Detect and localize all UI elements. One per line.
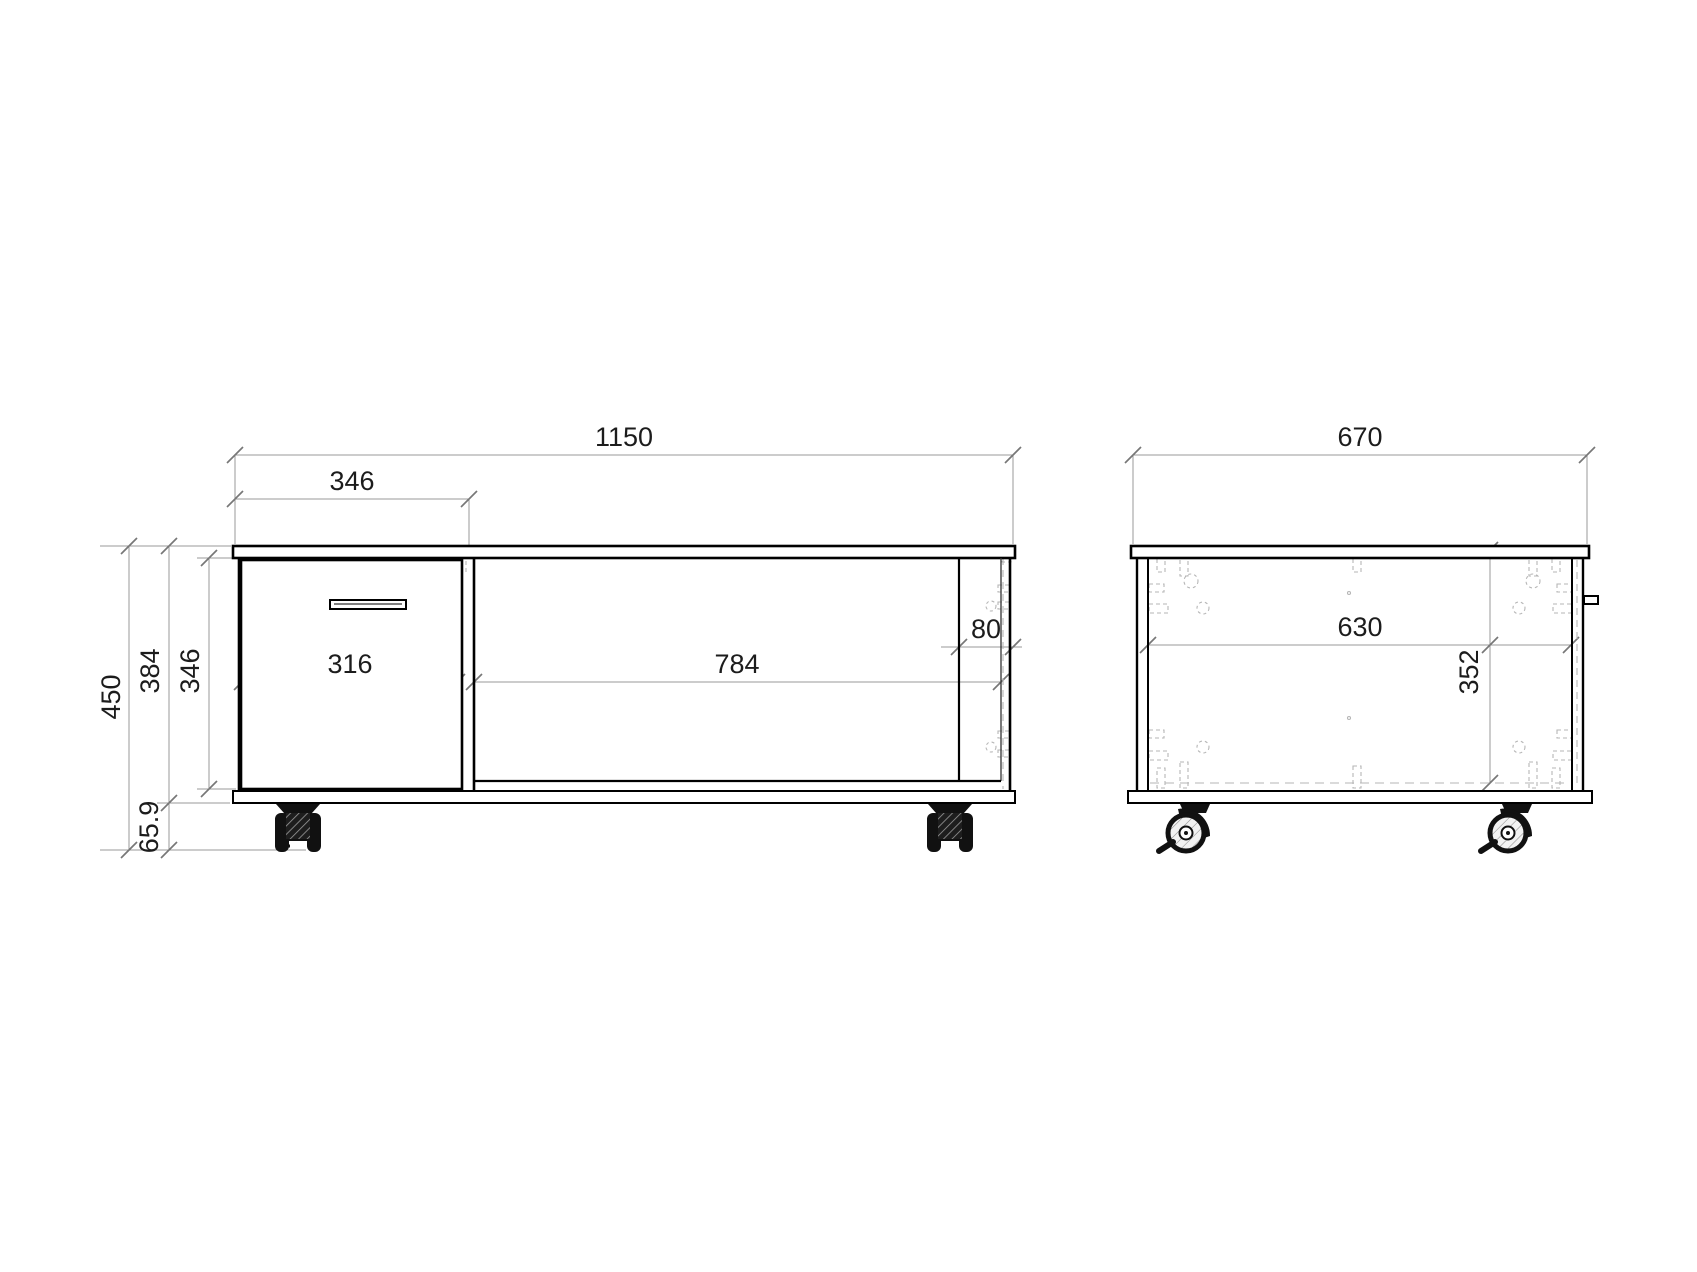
dim-front-drawer-section-width: 346 <box>329 466 374 496</box>
technical-drawing-page: 1150 346 316 784 80 450 384 346 65.9 <box>0 0 1697 1272</box>
dim-front-niche-width: 784 <box>714 649 759 679</box>
side-hidden-details <box>1149 548 1577 803</box>
side-bottom-panel <box>1128 791 1592 803</box>
front-tabletop <box>233 546 1015 558</box>
dim-front-interior-height: 346 <box>175 648 205 693</box>
dim-front-total-width: 1150 <box>595 422 653 452</box>
caster-side-right <box>1481 804 1532 851</box>
dim-front-caster-height: 65.9 <box>134 801 164 854</box>
caster-front-left <box>275 804 321 852</box>
side-tabletop <box>1131 546 1589 558</box>
dim-front-drawer-front-width: 316 <box>327 649 372 679</box>
side-view: 670 630 352 <box>1125 422 1598 851</box>
side-handle-profile <box>1584 596 1598 604</box>
side-body <box>1128 546 1598 803</box>
caster-side-left <box>1159 804 1210 851</box>
furniture-drawing-canvas: 1150 346 316 784 80 450 384 346 65.9 <box>0 0 1697 1272</box>
dim-front-side-recess: 80 <box>971 614 1001 644</box>
caster-front-right <box>927 804 973 852</box>
dim-side-total-depth: 670 <box>1337 422 1382 452</box>
dim-side-interior-height: 352 <box>1454 649 1484 694</box>
front-bottom-panel <box>233 791 1015 803</box>
dim-front-total-height: 450 <box>96 674 126 719</box>
dim-side-interior-depth: 630 <box>1337 612 1382 642</box>
dim-front-body-height: 384 <box>135 648 165 693</box>
front-view: 1150 346 316 784 80 450 384 346 65.9 <box>96 422 1022 858</box>
